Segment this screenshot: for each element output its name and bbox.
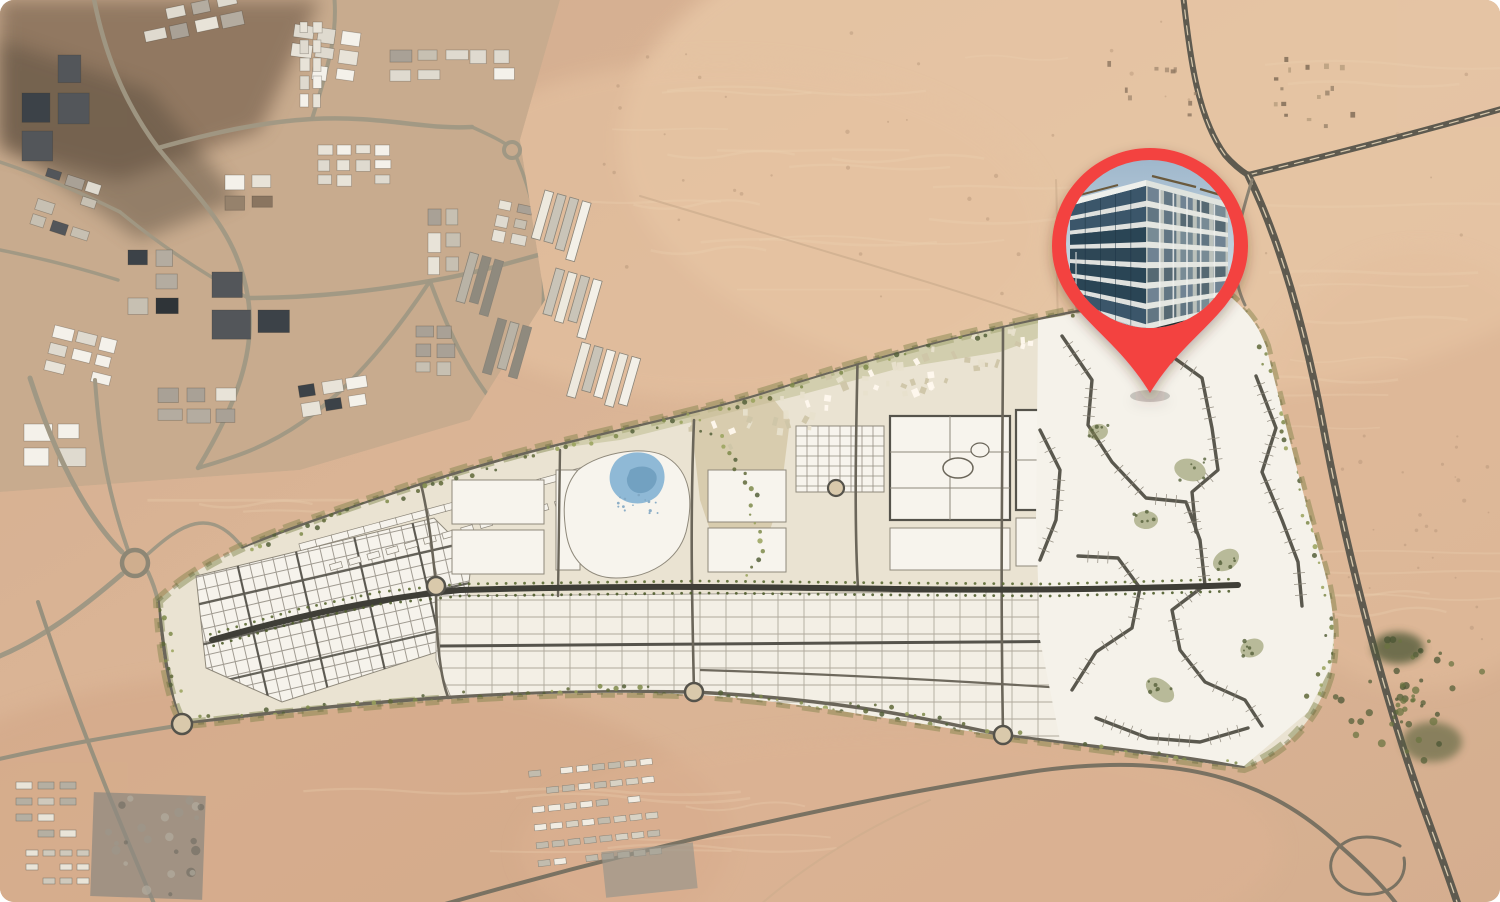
block-row bbox=[890, 528, 1010, 570]
roundabout bbox=[685, 683, 703, 701]
roundabout bbox=[122, 550, 148, 576]
block bbox=[452, 480, 544, 524]
roundabout bbox=[828, 480, 844, 496]
stadium bbox=[943, 458, 973, 478]
connector bbox=[1002, 320, 1003, 735]
roundabout bbox=[427, 577, 445, 595]
block bbox=[708, 470, 786, 522]
roundabout bbox=[994, 726, 1012, 744]
stadium bbox=[971, 443, 989, 457]
block bbox=[708, 528, 786, 572]
roundabout bbox=[172, 714, 192, 734]
roundabout bbox=[504, 142, 520, 158]
satellite-map bbox=[0, 0, 1500, 902]
block bbox=[452, 530, 544, 574]
